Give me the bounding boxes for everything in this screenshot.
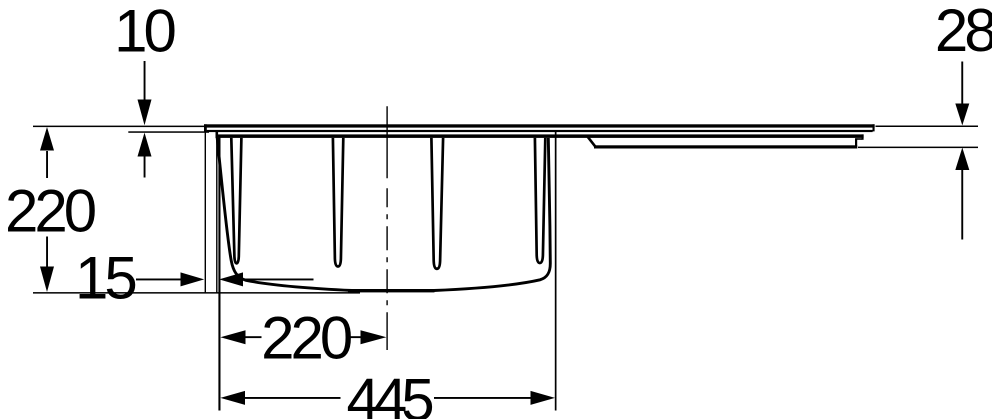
- svg-text:10: 10: [114, 0, 175, 65]
- svg-text:28: 28: [935, 0, 992, 64]
- svg-text:220: 220: [5, 178, 96, 245]
- svg-text:15: 15: [75, 245, 135, 312]
- svg-text:220: 220: [261, 305, 352, 372]
- svg-text:445: 445: [347, 366, 433, 419]
